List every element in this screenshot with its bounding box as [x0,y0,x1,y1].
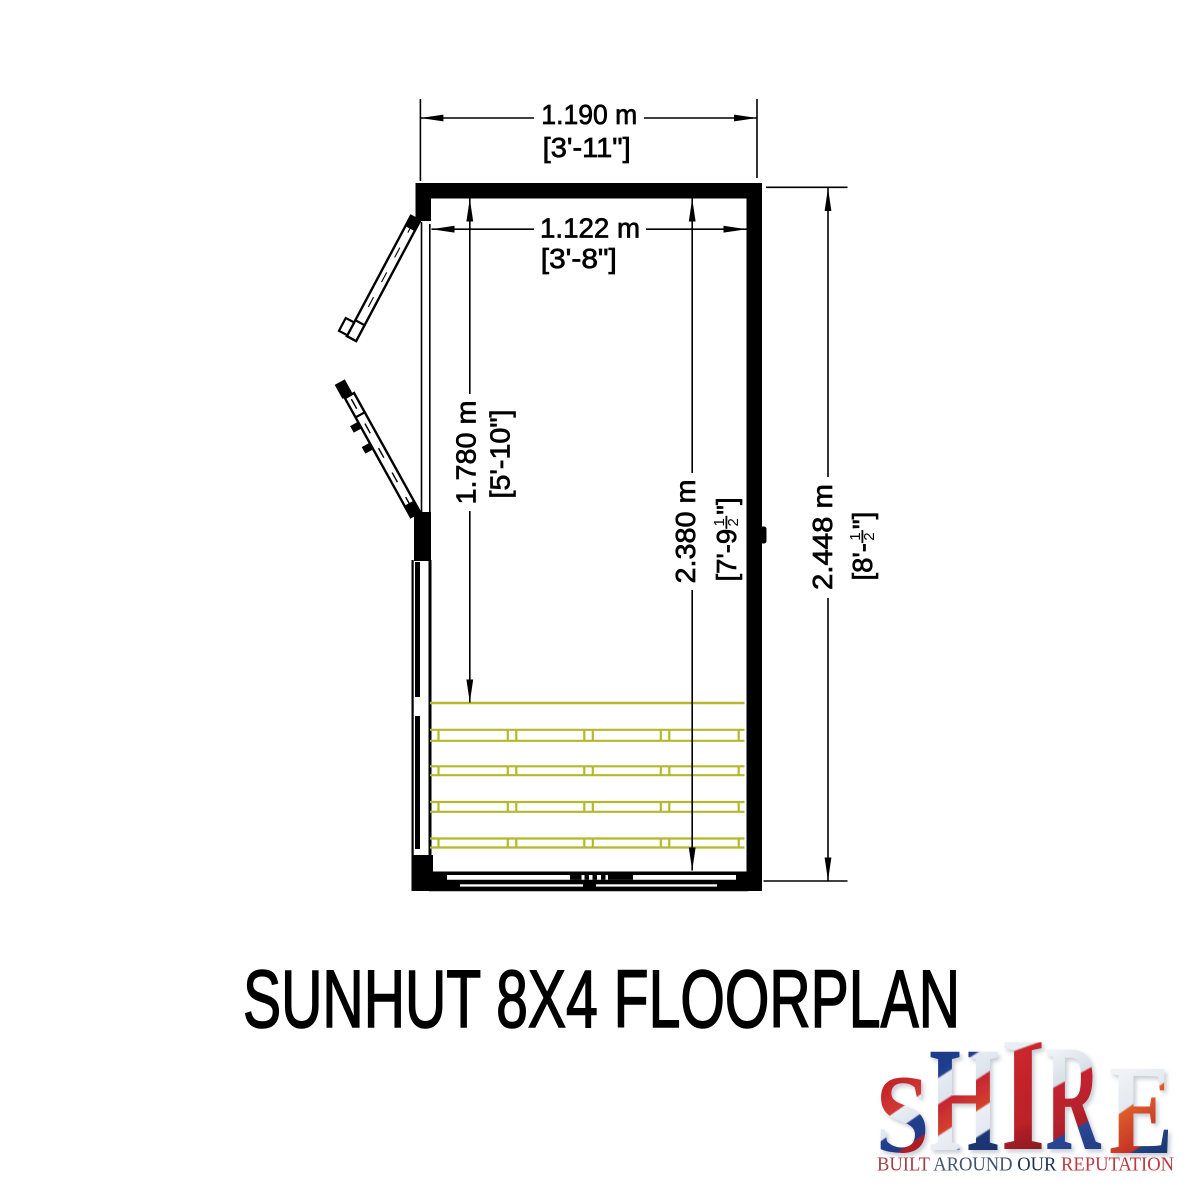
svg-text:2.448 m: 2.448 m [807,484,838,590]
svg-text:1.190 m: 1.190 m [541,99,637,130]
svg-text:[8'-: [8'- [847,543,878,580]
svg-text:[3'-8"]: [3'-8"] [541,243,617,274]
svg-text:2.380 m: 2.380 m [670,480,701,584]
svg-text:1.122 m: 1.122 m [540,213,640,244]
svg-text:"]: "] [711,497,742,514]
svg-text:BUILT AROUND OUR REPUTATION: BUILT AROUND OUR REPUTATION [877,1154,1174,1175]
svg-text:2: 2 [861,532,878,540]
svg-text:2: 2 [725,518,742,526]
svg-text:1.780 m: 1.780 m [451,401,482,505]
svg-text:"]: "] [847,512,878,529]
svg-text:SUNHUT 8X4 FLOORPLAN: SUNHUT 8X4 FLOORPLAN [243,954,960,1045]
svg-text:[3'-11"]: [3'-11"] [543,132,631,163]
svg-text:[5'-10"]: [5'-10"] [485,410,516,499]
svg-text:[7'-9: [7'-9 [711,529,742,582]
